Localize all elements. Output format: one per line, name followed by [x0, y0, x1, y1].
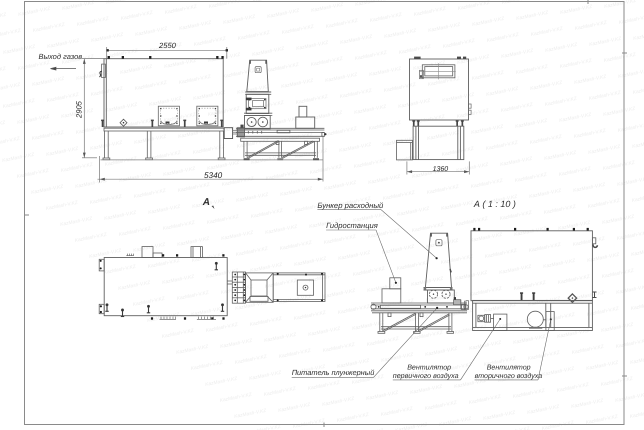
svg-text:Вентилятор: Вентилятор [407, 364, 451, 372]
svg-text:Гидростанция: Гидростанция [326, 221, 378, 230]
svg-text:Вентилятор: Вентилятор [487, 364, 531, 372]
svg-text:2905: 2905 [75, 100, 84, 119]
svg-text:Бункер расходный: Бункер расходный [317, 201, 384, 210]
svg-text:А ( 1 : 10 ): А ( 1 : 10 ) [473, 199, 516, 209]
svg-text:первичного воздуха: первичного воздуха [393, 372, 459, 380]
svg-text:5340: 5340 [204, 171, 223, 180]
svg-text:Питатель плунжерный: Питатель плунжерный [292, 368, 375, 377]
svg-text:вторичного воздуха: вторичного воздуха [475, 372, 543, 380]
svg-text:А: А [202, 197, 210, 208]
svg-text:Выход газов: Выход газов [39, 52, 83, 61]
svg-text:1360: 1360 [433, 166, 449, 173]
svg-text:2550: 2550 [158, 41, 177, 50]
